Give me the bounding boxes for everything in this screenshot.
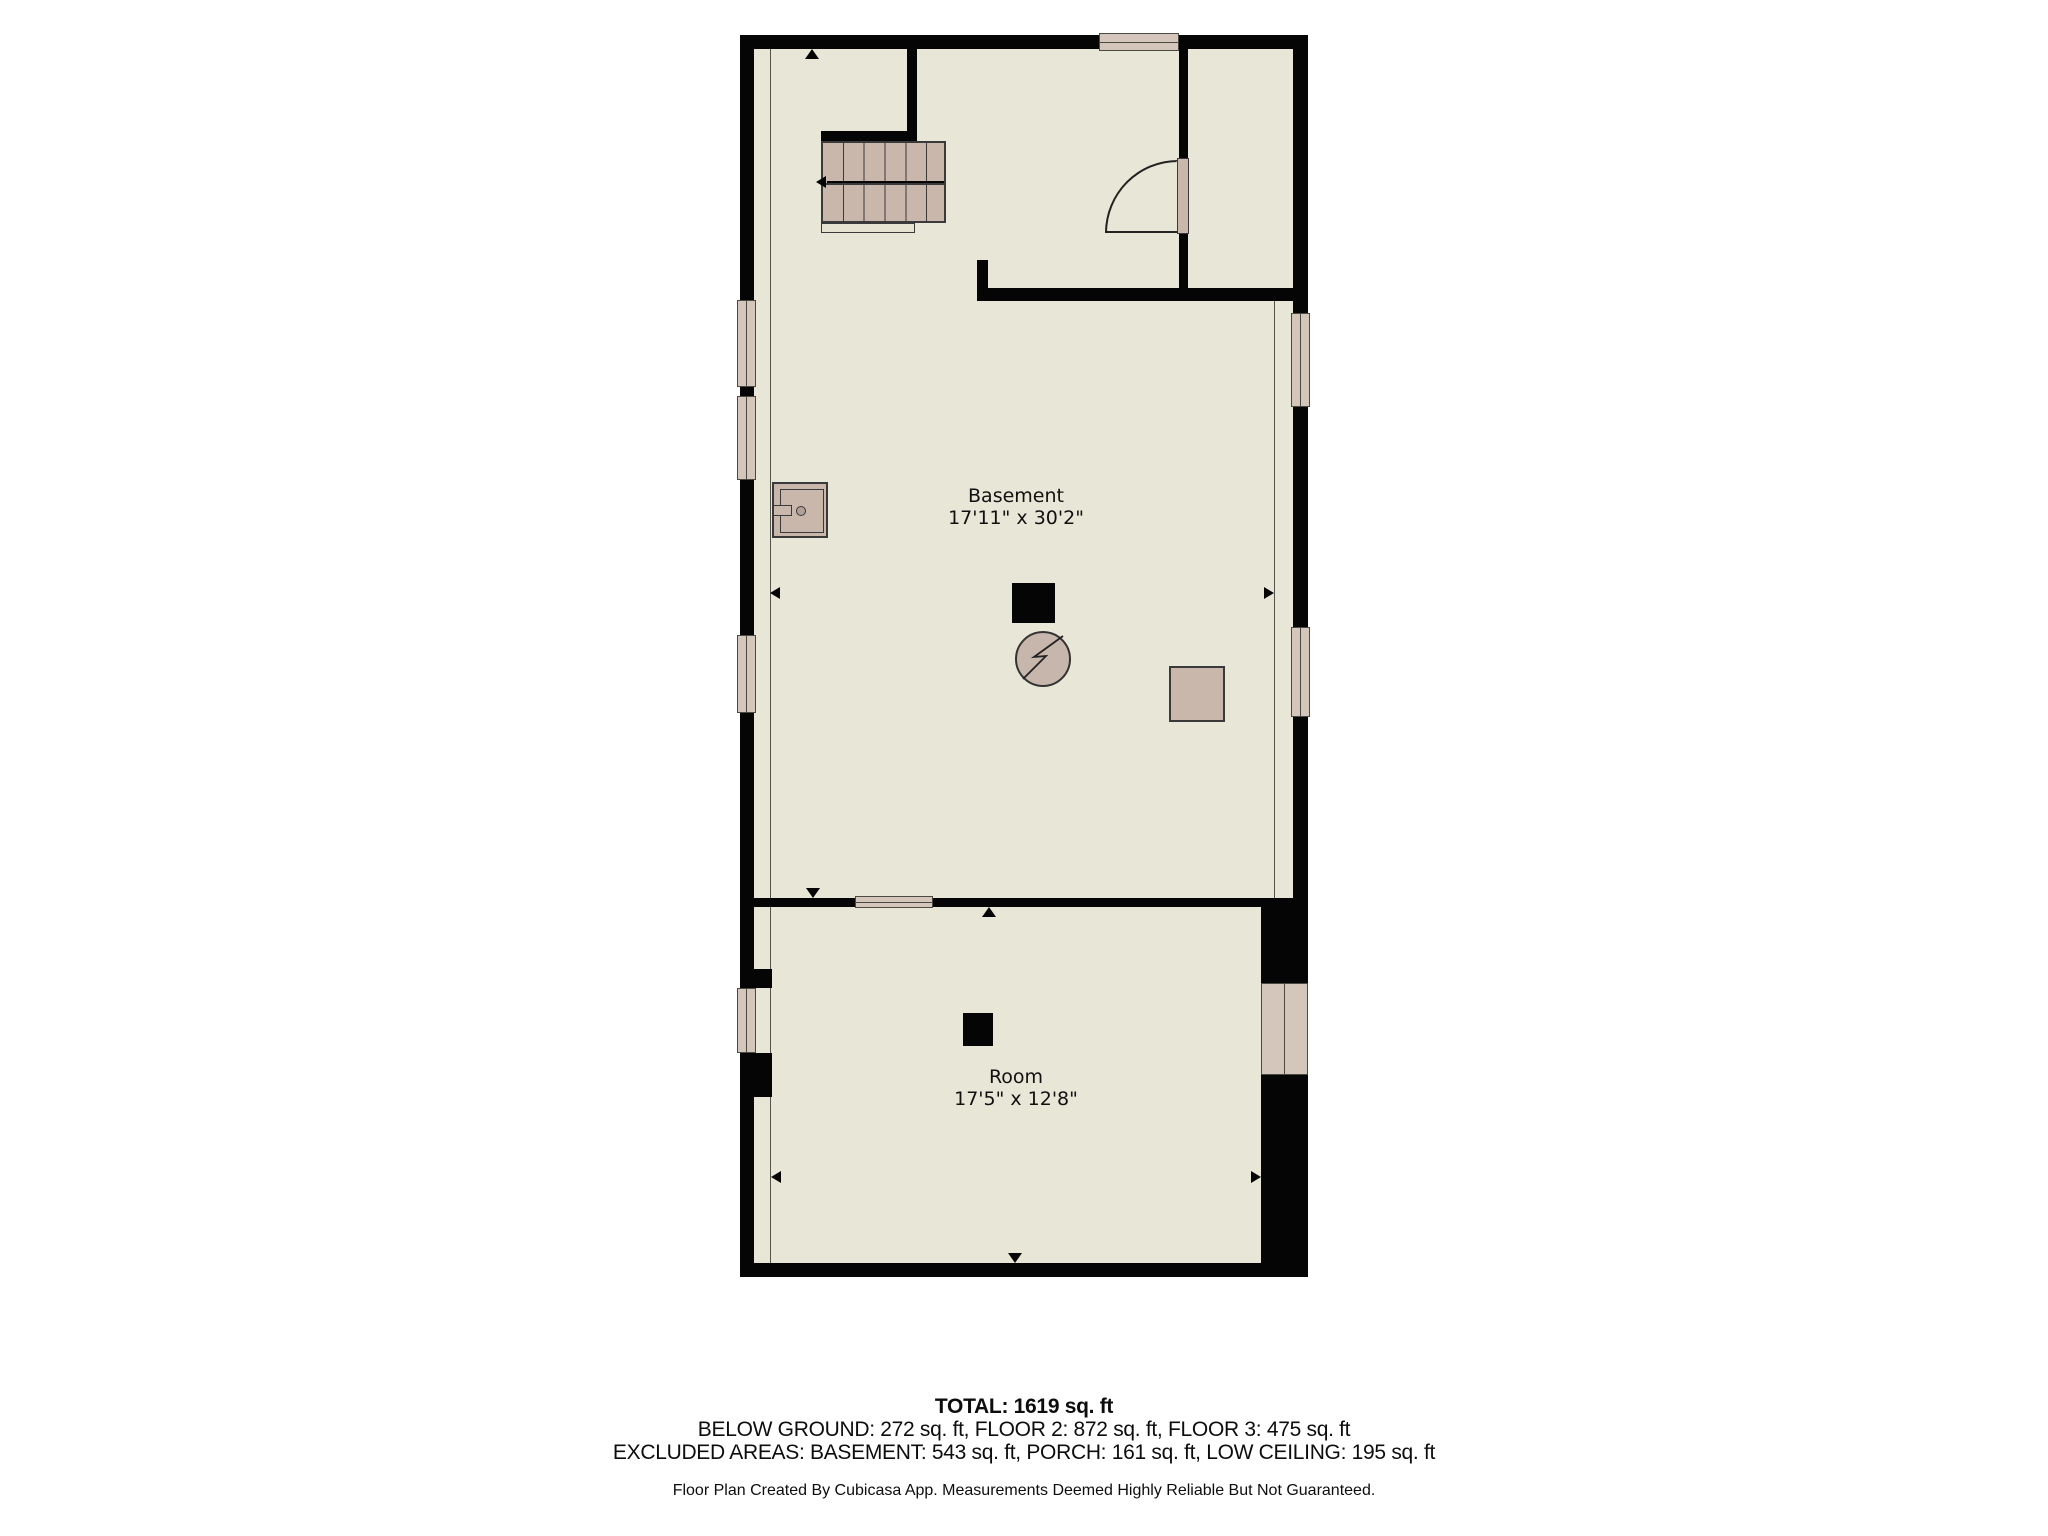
marker-arrow-left-icon xyxy=(771,1171,781,1183)
low-ceiling-line-left xyxy=(770,49,771,898)
basement-room-dimensions: 17'11" x 30'2" xyxy=(866,507,1166,529)
appliance-square-icon xyxy=(772,482,828,538)
black-square-icon xyxy=(1012,583,1055,623)
marker-arrow-down-icon xyxy=(1008,1253,1022,1263)
wall-hall-horizontal xyxy=(977,288,1308,301)
wall-stairwell-vertical xyxy=(907,49,917,131)
appliance-knob xyxy=(796,506,806,516)
summary-excluded: EXCLUDED AREAS: BASEMENT: 543 sq. ft, PO… xyxy=(0,1441,2048,1465)
stair-direction-arrow-icon xyxy=(816,176,826,188)
marker-arrow-down-icon xyxy=(806,888,820,898)
window-icon xyxy=(1099,33,1179,51)
stair-landing xyxy=(821,223,915,233)
room-label: Room 17'5" x 12'8" xyxy=(866,1066,1166,1110)
window-icon xyxy=(737,988,756,1053)
wall-room-left-block-b xyxy=(740,1053,772,1097)
wall-basement-room-divider xyxy=(740,898,1308,907)
summary-total: TOTAL: 1619 sq. ft xyxy=(0,1395,2048,1419)
window-icon xyxy=(1291,313,1310,407)
tan-square-icon xyxy=(1169,666,1225,722)
marker-arrow-up-icon xyxy=(805,49,819,59)
door-opening-line xyxy=(1105,231,1178,233)
marker-arrow-left-icon xyxy=(770,587,780,599)
window-icon xyxy=(737,396,756,480)
wall-room-bottom xyxy=(740,1263,1308,1277)
wall-top xyxy=(740,35,1308,49)
circle-lightning-icon xyxy=(1015,631,1071,687)
low-ceiling-line-right xyxy=(1274,301,1275,898)
wall-room-left-block-a xyxy=(740,969,772,988)
marker-arrow-right-icon xyxy=(1264,587,1274,599)
basement-label: Basement 17'11" x 30'2" xyxy=(866,485,1166,529)
wall-right xyxy=(1293,35,1308,907)
black-square-icon xyxy=(963,1013,993,1046)
window-icon xyxy=(737,300,756,387)
lightning-bolt-glyph xyxy=(1017,633,1069,685)
basement-room-name: Basement xyxy=(866,485,1166,507)
window-icon xyxy=(855,896,933,908)
appliance-handle xyxy=(773,505,792,516)
floor-plan-page: Basement 17'11" x 30'2" Room 17'5" x 12'… xyxy=(0,0,2048,1536)
room-dimensions: 17'5" x 12'8" xyxy=(866,1088,1166,1110)
window-icon xyxy=(1261,983,1308,1075)
marker-arrow-right-icon xyxy=(1251,1171,1261,1183)
wall-stairwell-horizontal xyxy=(821,131,917,141)
window-icon xyxy=(1291,627,1310,717)
stair-direction-line xyxy=(827,181,944,183)
wall-entry-above-door xyxy=(1179,49,1188,158)
window-icon xyxy=(737,635,756,713)
disclaimer-text: Floor Plan Created By Cubicasa App. Meas… xyxy=(0,1482,2048,1500)
wall-room-right-mass xyxy=(1261,907,1308,1277)
summary-floors: BELOW GROUND: 272 sq. ft, FLOOR 2: 872 s… xyxy=(0,1418,2048,1442)
room-name: Room xyxy=(866,1066,1166,1088)
door-leaf-icon xyxy=(1177,158,1189,234)
marker-arrow-up-icon xyxy=(982,907,996,917)
